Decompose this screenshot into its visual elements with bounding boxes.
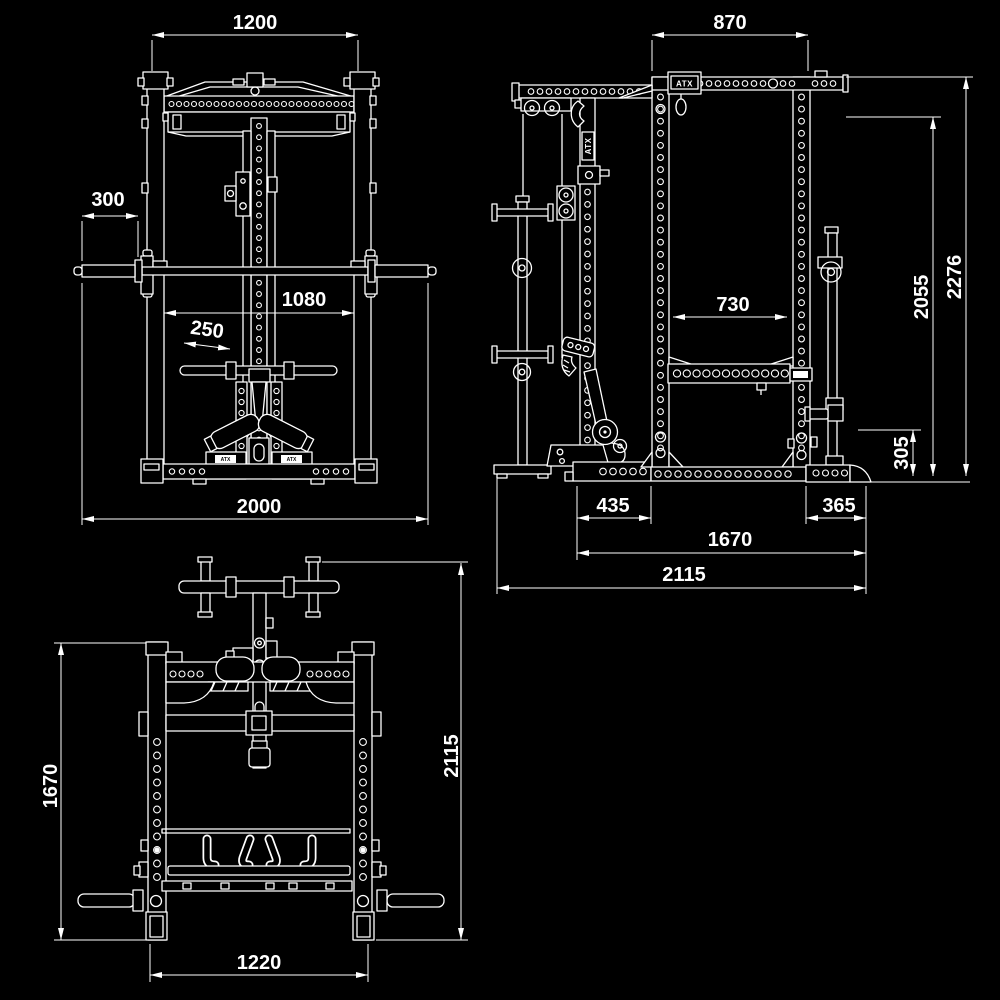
side-top-beam: ATX bbox=[652, 71, 848, 115]
dim-label-rear-foot: 365 bbox=[822, 495, 855, 517]
dim-label-inner-width: 1080 bbox=[282, 289, 327, 311]
weight-horns bbox=[78, 890, 444, 940]
tray-brand-plate-right: ATX bbox=[287, 457, 297, 463]
rear-plate-post bbox=[805, 227, 843, 467]
dim-label-base-width: 1220 bbox=[237, 952, 282, 974]
spotter-beam bbox=[668, 357, 812, 395]
dim-base-depth: 1670 bbox=[577, 529, 866, 553]
dim-base-height: 305 bbox=[858, 430, 921, 476]
dim-label-frame-length: 1670 bbox=[40, 764, 62, 809]
bench-structure bbox=[162, 829, 352, 891]
dim-base-width: 1220 bbox=[150, 944, 368, 982]
technical-drawing-page: ATX ATX 1200 300 1080 250 bbox=[0, 0, 1000, 1000]
dim-label-front-top-width: 1200 bbox=[233, 12, 278, 34]
dim-label-overall-depth: 2115 bbox=[662, 564, 705, 586]
dim-top-depth: 870 bbox=[652, 12, 808, 71]
dim-label-overall-width: 2000 bbox=[237, 496, 282, 518]
dim-inner-depth: 730 bbox=[673, 294, 787, 317]
three-view-drawing: ATX ATX 1200 300 1080 250 bbox=[0, 0, 1000, 1000]
dim-label-top-depth: 870 bbox=[713, 12, 746, 34]
front-view: ATX ATX 1200 300 1080 250 bbox=[74, 12, 436, 525]
dim-label-inner-depth: 730 bbox=[716, 294, 749, 316]
dim-handle-length: 250 bbox=[184, 317, 230, 349]
top-view: 1670 2115 1220 bbox=[40, 557, 468, 982]
dim-label-front-foot: 435 bbox=[596, 495, 629, 517]
side-view: ATX ATX bbox=[492, 12, 973, 594]
trolley-brand-logo: ATX bbox=[676, 80, 693, 89]
dim-rear-foot: 365 bbox=[806, 486, 866, 594]
dim-label-overall-length: 2115 bbox=[441, 734, 463, 777]
dim-sleeve-length: 300 bbox=[82, 189, 138, 261]
tower-brand-logo: ATX bbox=[584, 137, 593, 154]
lat-front-bar bbox=[492, 196, 553, 478]
dim-label-overall-height: 2276 bbox=[944, 255, 966, 300]
dim-label-sleeve-length: 300 bbox=[91, 189, 124, 211]
lat-tower: ATX bbox=[512, 83, 652, 467]
dim-label-base-depth: 1670 bbox=[708, 529, 753, 551]
dim-label-rack-height: 2055 bbox=[911, 275, 933, 320]
side-front-upright bbox=[652, 77, 669, 480]
dim-rack-height: 2055 bbox=[846, 117, 941, 476]
dim-label-base-height: 305 bbox=[891, 436, 913, 469]
dim-front-foot: 435 bbox=[577, 486, 651, 560]
carabiner-icon bbox=[676, 99, 686, 115]
dim-front-top-width: 1200 bbox=[152, 12, 358, 71]
tray-brand-plate-left: ATX bbox=[221, 457, 231, 463]
dim-overall-depth: 2115 bbox=[497, 478, 866, 594]
dim-label-handle-length: 250 bbox=[189, 317, 225, 343]
dim-overall-height: 2276 bbox=[846, 77, 973, 476]
